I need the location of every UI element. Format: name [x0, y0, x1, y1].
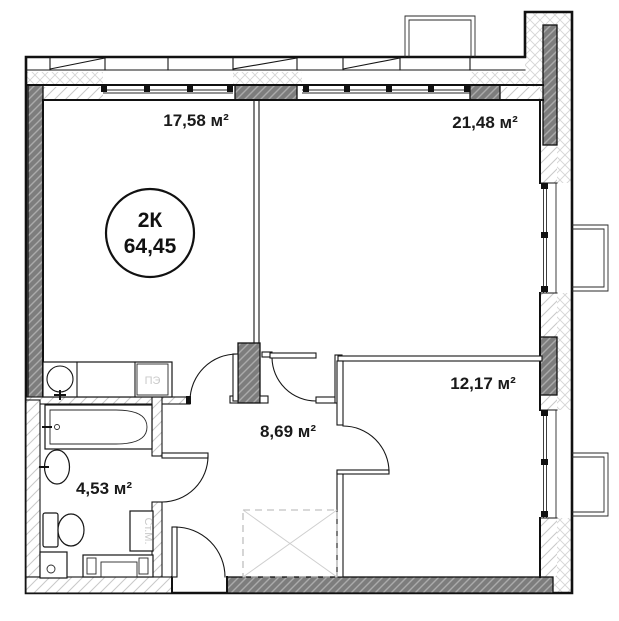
parapet-band [26, 57, 525, 70]
entrance-door [172, 527, 227, 593]
bottom-wall [227, 577, 553, 593]
room-label-living: 21,48 м² [452, 113, 518, 132]
living-window [302, 86, 470, 93]
bedroom-side-window [541, 410, 556, 518]
bathroom-door-leaf [162, 453, 208, 458]
washing-machine: Ст.М. [130, 511, 154, 551]
stove-label: ПЭ [145, 375, 161, 387]
top-right-pier [470, 85, 500, 100]
bathroom-top-wall [26, 397, 190, 404]
left-wall [28, 85, 43, 400]
entrance-door-arc [175, 527, 225, 577]
bathroom-left-wall [26, 400, 40, 577]
bedroom-left-wall-upper [337, 361, 343, 425]
bedroom-top-wall [338, 356, 542, 361]
unit-type-label: 2К [138, 209, 163, 232]
unit-total-area: 64,45 [124, 235, 177, 258]
bedroom-door-arc [343, 426, 389, 472]
room-label-bedroom: 12,17 м² [450, 374, 516, 393]
entrance-door-leaf [172, 527, 177, 577]
kitchen-door-leaf [233, 354, 238, 401]
right-wall-pier [540, 337, 557, 395]
bathtub [43, 405, 152, 449]
kitchen-living-partition [254, 100, 259, 343]
bedroom-balcony [572, 453, 608, 516]
bathroom-door-arc [162, 456, 208, 502]
unit-badge: 2К 64,45 [106, 189, 194, 277]
room-label-kitchen: 17,58 м² [163, 111, 229, 130]
bedroom-left-wall-lower [337, 472, 343, 577]
bedroom-door-leaf [337, 470, 389, 474]
kitchen-counter: ПЭ [43, 362, 172, 399]
living-door-arc [272, 358, 316, 401]
floor-plan: ПЭ Ст.М. 17,58 м² 21,48 м² 12,17 м² 8,69… [0, 0, 619, 621]
living-door [262, 352, 342, 403]
top-mid-pier [235, 85, 297, 100]
top-balcony [405, 16, 475, 57]
kitchen-door [190, 354, 238, 401]
living-balcony [572, 225, 608, 291]
bathroom-door [162, 453, 208, 502]
room-label-bathroom: 4,53 м² [76, 479, 132, 498]
inner-wall-hatch [43, 87, 557, 577]
structural-walls [28, 25, 557, 593]
toilet [43, 513, 84, 547]
floor-plan-page: ПЭ Ст.М. 17,58 м² 21,48 м² 12,17 м² 8,69… [0, 0, 619, 621]
plumbing-shaft [40, 552, 153, 578]
corner-pier [543, 25, 557, 145]
hall-pier-foot-right [260, 396, 268, 403]
room-label-hallway: 8,69 м² [260, 422, 316, 441]
living-side-window [541, 183, 556, 293]
bathroom-bottom-wall [26, 577, 172, 593]
kitchen-door-arc [190, 354, 237, 401]
wardrobe-zone [243, 510, 337, 577]
washer-label: Ст.М. [142, 517, 154, 544]
kitchen-window [101, 86, 233, 93]
bathroom-sink [40, 450, 70, 484]
living-door-leaf [270, 353, 316, 358]
hall-pier [238, 343, 260, 403]
bathroom-right-wall-upper [152, 397, 162, 456]
